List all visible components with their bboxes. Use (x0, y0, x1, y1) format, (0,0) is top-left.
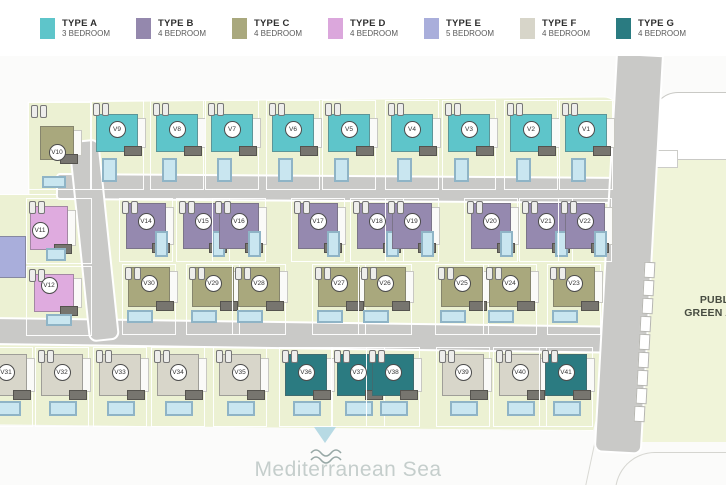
legend-swatch-icon (616, 18, 631, 39)
villa-label[interactable]: V41 (558, 364, 575, 381)
villa-label[interactable]: V37 (350, 364, 367, 381)
villa-pool (127, 310, 153, 323)
villa-label[interactable]: V8 (169, 121, 186, 138)
car-icon (179, 201, 186, 214)
villa-pool (237, 310, 263, 323)
villa-label[interactable]: V7 (224, 121, 241, 138)
public-green-area-label: PUBLIC GREEN AREA (640, 294, 726, 320)
villa-terrace (124, 146, 142, 156)
villa-pool (227, 401, 255, 416)
villa-pool (191, 310, 217, 323)
villa-label[interactable]: V23 (566, 275, 583, 292)
legend-swatch-icon (136, 18, 151, 39)
villa-label[interactable]: V4 (404, 121, 421, 138)
car-icon (505, 350, 512, 363)
legend-bedroom-label: 3 BEDROOM (62, 29, 110, 39)
villa-terrace (13, 390, 31, 400)
car-icon (96, 350, 103, 363)
villa-label[interactable]: V3 (461, 121, 478, 138)
villa-pool (155, 231, 168, 257)
car-icon (559, 267, 566, 280)
villa-label[interactable]: V27 (331, 275, 348, 292)
villa-type-e-partial[interactable] (0, 236, 26, 278)
villa-terrace (185, 390, 203, 400)
villa-pool (363, 310, 389, 323)
villa-terrace (300, 146, 318, 156)
car-icon (570, 201, 577, 214)
villa-pool (454, 158, 469, 182)
site-plan-page: { "legend": { "items": [ {"type": "TYPE … (0, 0, 726, 485)
villa-label[interactable]: V21 (538, 213, 555, 230)
car-icon (162, 103, 169, 116)
villa-pool (500, 231, 513, 257)
car-icon (122, 201, 129, 214)
public-label-line1: PUBLIC (700, 294, 726, 306)
car-icon (476, 201, 483, 214)
car-icon (495, 267, 502, 280)
villa-terrace (419, 146, 437, 156)
car-icon (486, 267, 493, 280)
villa-pool (327, 231, 340, 257)
legend-bedroom-label: 5 BEDROOM (446, 29, 494, 39)
villa-label[interactable]: V29 (205, 275, 222, 292)
villa-terrace (266, 301, 284, 311)
legend-bedroom-label: 4 BEDROOM (350, 29, 398, 39)
villa-terrace (517, 301, 535, 311)
villa-pool (162, 158, 177, 182)
villa-label[interactable]: V36 (298, 364, 315, 381)
villa-terrace (581, 301, 599, 311)
car-icon (163, 350, 170, 363)
villa-label[interactable]: V40 (512, 364, 529, 381)
car-icon (448, 350, 455, 363)
car-icon (235, 267, 242, 280)
car-icon (269, 103, 276, 116)
villa-label[interactable]: V5 (341, 121, 358, 138)
car-icon (334, 103, 341, 116)
legend-bar: TYPE A 3 BEDROOM TYPE B 4 BEDROOM TYPE C… (0, 0, 726, 56)
legend-swatch-icon (232, 18, 247, 39)
villa-label[interactable]: V12 (41, 277, 58, 294)
car-icon (153, 103, 160, 116)
car-icon (291, 350, 298, 363)
villa-pool (380, 401, 408, 416)
car-icon (216, 350, 223, 363)
villa-pool (293, 401, 321, 416)
car-icon (571, 103, 578, 116)
legend-item-c: TYPE C 4 BEDROOM (232, 18, 328, 39)
villa-terrace (356, 146, 374, 156)
car-icon (550, 267, 557, 280)
legend-swatch-icon (328, 18, 343, 39)
villa-label[interactable]: V30 (141, 275, 158, 292)
villa-pool (553, 401, 581, 416)
public-label-line2: GREEN AREA (684, 307, 726, 319)
villa-label[interactable]: V11 (32, 222, 49, 239)
villa-terrace (470, 390, 488, 400)
villa-terrace (247, 390, 265, 400)
villa-label[interactable]: V16 (231, 213, 248, 230)
car-icon (40, 105, 47, 118)
villa-label[interactable]: V10 (49, 144, 66, 161)
car-icon (388, 103, 395, 116)
legend-item-b: TYPE B 4 BEDROOM (136, 18, 232, 39)
villa-terrace (239, 146, 257, 156)
legend-swatch-icon (520, 18, 535, 39)
villa-label[interactable]: V17 (310, 213, 327, 230)
villa-pool (42, 176, 66, 188)
villa-terrace (593, 146, 611, 156)
car-icon (38, 350, 45, 363)
villa-pool (49, 401, 77, 416)
car-icon (189, 267, 196, 280)
villa-label[interactable]: V34 (170, 364, 187, 381)
villa-terrace (538, 146, 556, 156)
villa-pool (46, 314, 72, 326)
villa-pool (278, 158, 293, 182)
villa-terrace (400, 390, 418, 400)
car-icon (154, 350, 161, 363)
villa-terrace (392, 301, 410, 311)
car-icon (388, 201, 395, 214)
villa-terrace (313, 390, 331, 400)
car-icon (315, 267, 322, 280)
car-icon (224, 201, 231, 214)
car-icon (334, 350, 341, 363)
car-icon (93, 103, 100, 116)
villa-pool (552, 310, 578, 323)
villa-pool (102, 158, 117, 182)
car-icon (353, 201, 360, 214)
legend-type-label: TYPE E (446, 18, 494, 29)
car-icon (217, 103, 224, 116)
car-icon (324, 267, 331, 280)
villa-label[interactable]: V39 (455, 364, 472, 381)
legend-item-f: TYPE F 4 BEDROOM (520, 18, 616, 39)
villa-terrace (184, 146, 202, 156)
villa-pool (440, 310, 466, 323)
villa-label[interactable]: V14 (138, 213, 155, 230)
car-icon (188, 201, 195, 214)
car-icon (369, 350, 376, 363)
villas-layer: V9V8V7V6V5V4V3V2V1V10V11V12V14V15V16V17V… (0, 0, 726, 485)
villa-pool (516, 158, 531, 182)
car-icon (370, 267, 377, 280)
villa-label[interactable]: V20 (483, 213, 500, 230)
sea-direction-arrow-icon (314, 427, 336, 443)
villa-label[interactable]: V15 (195, 213, 212, 230)
villa-pool (421, 231, 434, 257)
legend-item-d: TYPE D 4 BEDROOM (328, 18, 424, 39)
villa-label[interactable]: V6 (285, 121, 302, 138)
car-icon (531, 201, 538, 214)
villa-label[interactable]: V31 (0, 364, 15, 381)
villa-pool (571, 158, 586, 182)
car-icon (47, 350, 54, 363)
villa-terrace (573, 390, 591, 400)
car-icon (282, 350, 289, 363)
legend-item-g: TYPE G 4 BEDROOM (616, 18, 712, 39)
car-icon (397, 201, 404, 214)
car-icon (507, 103, 514, 116)
car-icon (131, 201, 138, 214)
legend-type-label: TYPE F (542, 18, 590, 29)
legend-swatch-icon (424, 18, 439, 39)
villa-pool (507, 401, 535, 416)
car-icon (467, 201, 474, 214)
villa-label[interactable]: V9 (109, 121, 126, 138)
car-icon (38, 201, 45, 214)
car-icon (522, 201, 529, 214)
car-icon (362, 201, 369, 214)
villa-pool (107, 401, 135, 416)
car-icon (496, 350, 503, 363)
villa-pool (594, 231, 607, 257)
legend-swatch-icon (40, 18, 55, 39)
villa-pool (46, 248, 66, 261)
legend-bedroom-label: 4 BEDROOM (158, 29, 206, 39)
car-icon (516, 103, 523, 116)
car-icon (361, 267, 368, 280)
car-icon (378, 350, 385, 363)
villa-pool (488, 310, 514, 323)
villa-pool (397, 158, 412, 182)
car-icon (454, 103, 461, 116)
legend-bedroom-label: 4 BEDROOM (254, 29, 302, 39)
car-icon (447, 267, 454, 280)
legend-bedroom-label: 4 BEDROOM (638, 29, 686, 39)
car-icon (303, 201, 310, 214)
villa-label[interactable]: V26 (377, 275, 394, 292)
villa-label[interactable]: V22 (577, 213, 594, 230)
villa-label[interactable]: V18 (369, 213, 386, 230)
car-icon (29, 201, 36, 214)
legend-type-label: TYPE D (350, 18, 398, 29)
legend-type-label: TYPE C (254, 18, 302, 29)
car-icon (551, 350, 558, 363)
villa-pool (248, 231, 261, 257)
villa-terrace (156, 301, 174, 311)
villa-label[interactable]: V35 (232, 364, 249, 381)
car-icon (278, 103, 285, 116)
car-icon (208, 103, 215, 116)
car-icon (542, 350, 549, 363)
villa-label[interactable]: V25 (454, 275, 471, 292)
villa-pool (217, 158, 232, 182)
villa-pool (317, 310, 343, 323)
villa-terrace (127, 390, 145, 400)
car-icon (294, 201, 301, 214)
villa-label[interactable]: V24 (502, 275, 519, 292)
legend-bedroom-label: 4 BEDROOM (542, 29, 590, 39)
legend-type-label: TYPE G (638, 18, 686, 29)
car-icon (445, 103, 452, 116)
legend-item-a: TYPE A 3 BEDROOM (40, 18, 136, 39)
villa-pool (450, 401, 478, 416)
car-icon (562, 103, 569, 116)
villa-label[interactable]: V33 (112, 364, 129, 381)
villa-label[interactable]: V38 (385, 364, 402, 381)
car-icon (134, 267, 141, 280)
car-icon (397, 103, 404, 116)
car-icon (244, 267, 251, 280)
legend-item-e: TYPE E 5 BEDROOM (424, 18, 520, 39)
car-icon (102, 103, 109, 116)
villa-terrace (476, 146, 494, 156)
villa-terrace (69, 390, 87, 400)
car-icon (31, 105, 38, 118)
car-icon (438, 267, 445, 280)
villa-pool (0, 401, 21, 416)
car-icon (215, 201, 222, 214)
legend-type-label: TYPE A (62, 18, 110, 29)
car-icon (325, 103, 332, 116)
car-icon (29, 269, 36, 282)
car-icon (105, 350, 112, 363)
car-icon (561, 201, 568, 214)
sea-label: Mediterranean Sea (208, 458, 488, 482)
villa-label[interactable]: V2 (523, 121, 540, 138)
car-icon (439, 350, 446, 363)
villa-label[interactable]: V1 (578, 121, 595, 138)
legend-type-label: TYPE B (158, 18, 206, 29)
car-icon (125, 267, 132, 280)
car-icon (225, 350, 232, 363)
car-icon (198, 267, 205, 280)
villa-pool (165, 401, 193, 416)
car-icon (343, 350, 350, 363)
villa-label[interactable]: V32 (54, 364, 71, 381)
villa-label[interactable]: V19 (404, 213, 421, 230)
villa-pool (334, 158, 349, 182)
villa-label[interactable]: V28 (251, 275, 268, 292)
